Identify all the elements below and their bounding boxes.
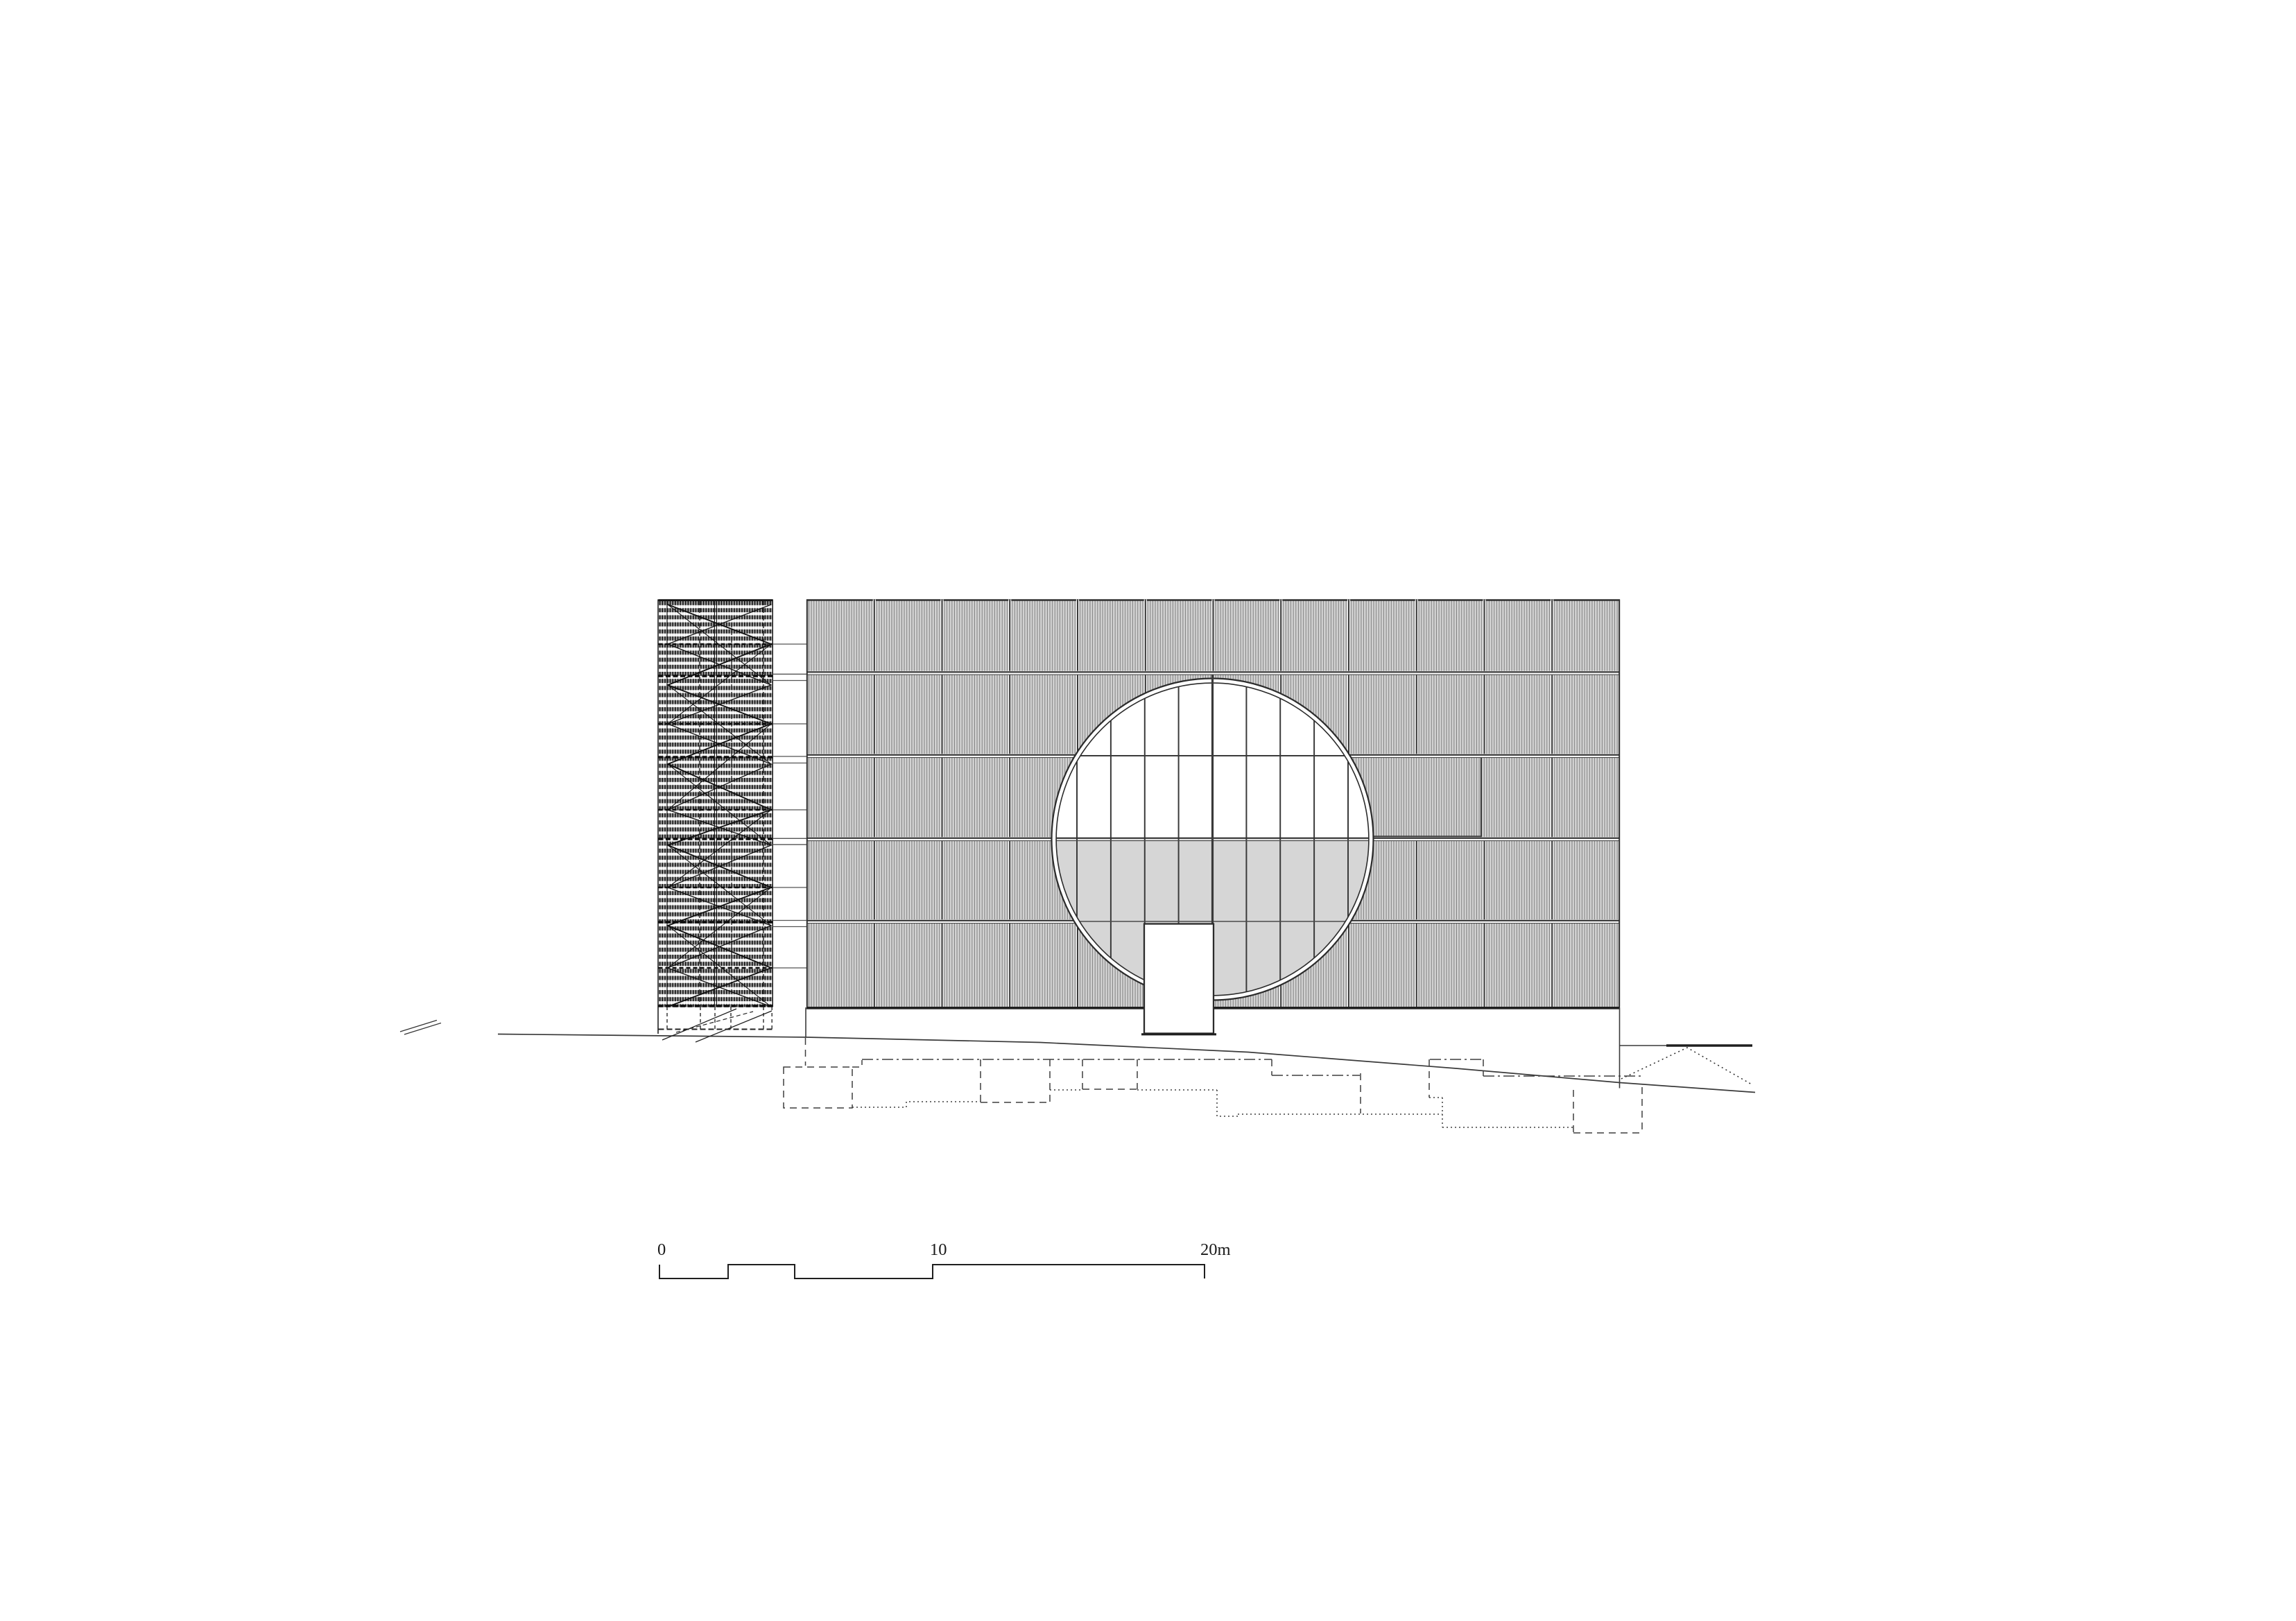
svg-text:0: 0	[657, 1240, 666, 1259]
svg-text:20m: 20m	[1200, 1240, 1231, 1259]
svg-text:10: 10	[930, 1240, 947, 1259]
